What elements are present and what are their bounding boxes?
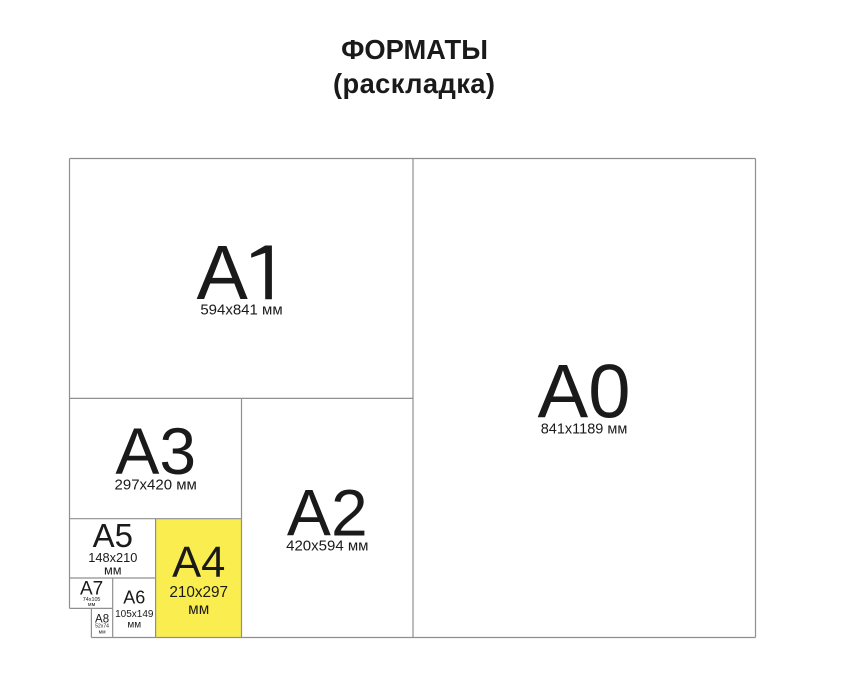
svg-text:210x297: 210x297 [169, 584, 228, 601]
svg-text:мм: мм [127, 619, 141, 630]
svg-text:420x594 мм: 420x594 мм [286, 538, 368, 555]
svg-text:мм: мм [88, 602, 96, 608]
svg-text:ФОРМАТЫ: ФОРМАТЫ [341, 34, 488, 65]
svg-text:мм: мм [99, 629, 106, 635]
svg-text:A5: A5 [93, 517, 133, 554]
svg-text:A6: A6 [123, 588, 145, 608]
svg-text:594x841 мм: 594x841 мм [200, 302, 282, 319]
svg-text:297x420 мм: 297x420 мм [115, 477, 197, 494]
svg-text:(раскладка): (раскладка) [333, 68, 495, 99]
svg-text:мм: мм [188, 601, 209, 618]
svg-text:A4: A4 [172, 539, 225, 587]
svg-text:841x1189 мм: 841x1189 мм [541, 422, 628, 438]
svg-text:мм: мм [104, 563, 122, 578]
